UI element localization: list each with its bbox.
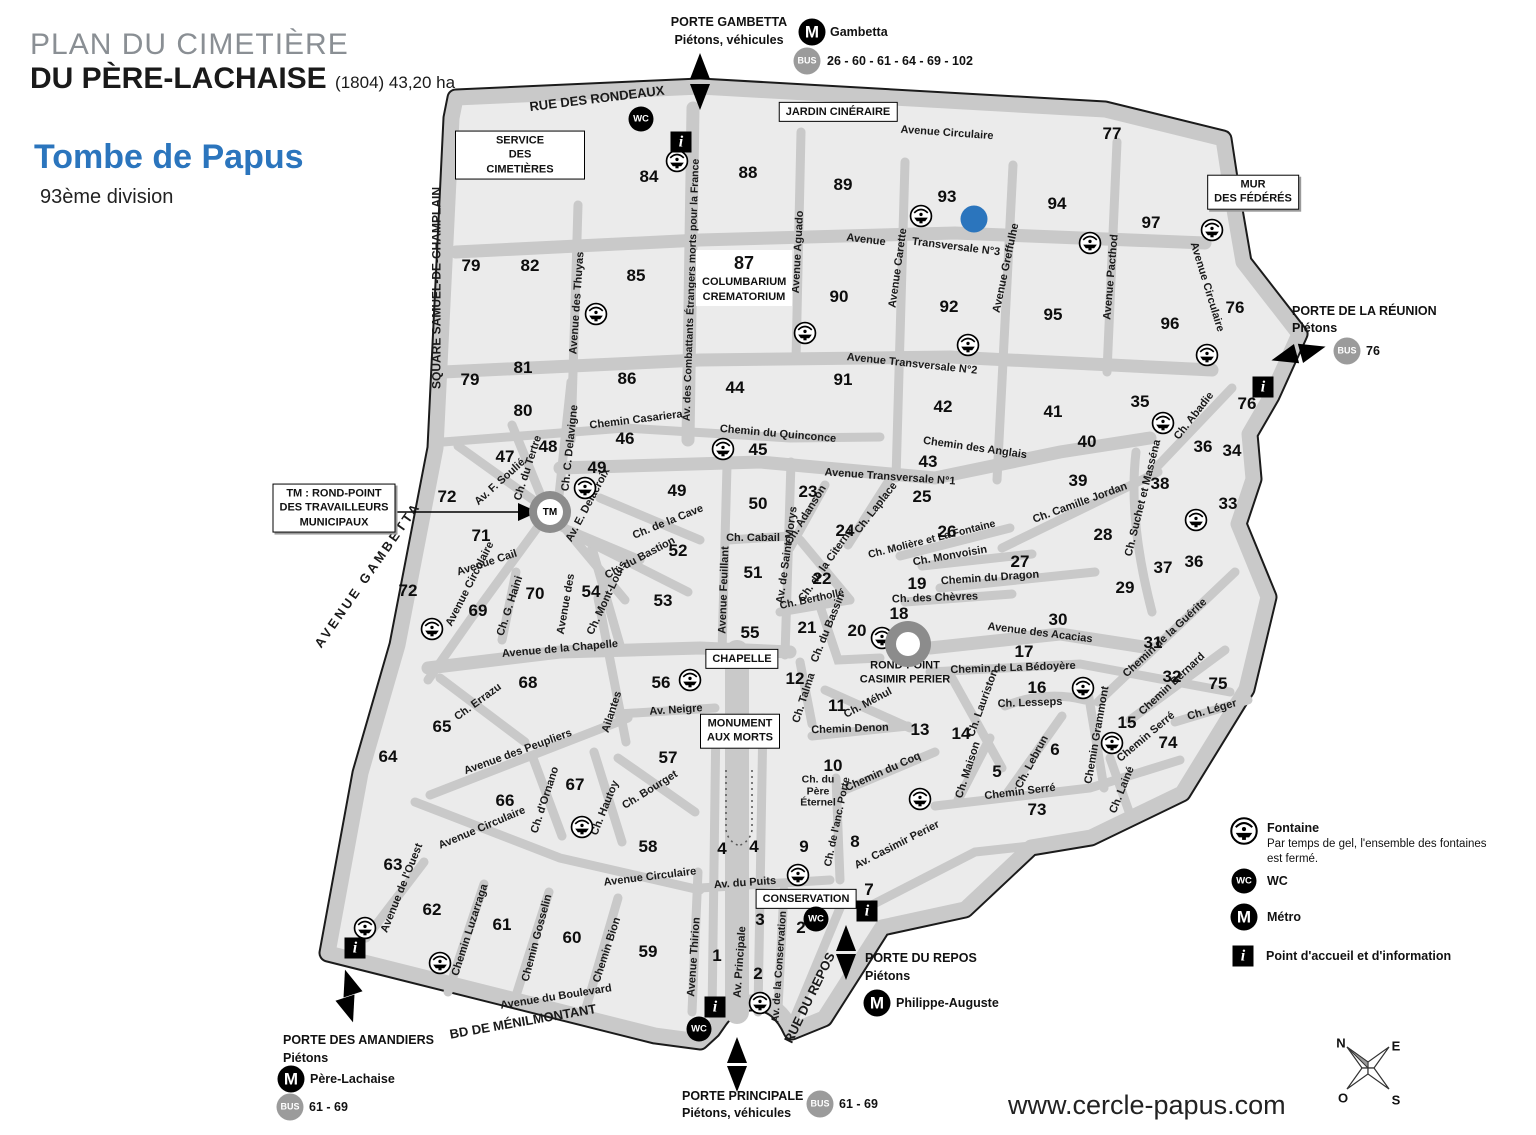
fountain-icon (1079, 232, 1102, 255)
fountain-icon (354, 917, 377, 940)
fountain-icon (666, 150, 689, 173)
tm-roundabout: TM (529, 491, 571, 533)
compass-south-label: S (1392, 1093, 1401, 1108)
division-label-1: 1 (712, 946, 721, 966)
street-label: Avenue Feuillant (716, 546, 731, 634)
street-label: Chemin Gosselin (520, 893, 555, 983)
division-label-95: 95 (1044, 305, 1063, 325)
division-label-64: 64 (379, 747, 398, 767)
jardin-cineraire-box: JARDIN CINÉRAIRE (779, 102, 898, 122)
division-label-68: 68 (519, 673, 538, 693)
legend-metro-label: Métro (1267, 910, 1301, 924)
division-label-94: 94 (1048, 194, 1067, 214)
fountain-icon (1230, 817, 1258, 845)
conservation-box: CONSERVATION (756, 889, 857, 909)
principale-entrance-subtitle: Piétons, véhicules (682, 1106, 791, 1120)
street-label: Chemin des Anglais (922, 435, 1027, 462)
division-label-77: 77 (1103, 124, 1122, 144)
division-label-25: 25 (913, 487, 932, 507)
gambetta-bus-label: 26 - 60 - 61 - 64 - 69 - 102 (827, 54, 973, 68)
street-label: Av. Principale (731, 926, 748, 998)
street-label: Avenue Circulaire (1188, 241, 1227, 334)
division-label-11: 11 (828, 696, 846, 716)
gambetta-entrance-subtitle: Piétons, véhicules (674, 33, 783, 47)
reunion-bus-label: 76 (1366, 344, 1380, 358)
tm-note-box: TM : ROND-POINTDES TRAVAILLEURSMUNICIPAU… (273, 484, 396, 533)
division-label-32: 32 (1163, 667, 1182, 687)
division-label-4: 4 (717, 839, 726, 859)
fountain-icon (585, 303, 608, 326)
division-label-34: 34 (1223, 441, 1242, 461)
metro-icon: M (799, 19, 826, 46)
division-label-4: 4 (749, 837, 758, 857)
division-label-92: 92 (940, 297, 959, 317)
info-icon: i (1233, 946, 1254, 967)
division-label-54: 54 (582, 582, 601, 602)
street-label: RUE DU REPOS (782, 950, 838, 1045)
entrance-arrow-icon (690, 84, 710, 110)
division-label-37: 37 (1154, 558, 1173, 578)
street-label: Ch. Suchet et Masséna (1123, 438, 1164, 557)
principale-entrance-title: PORTE PRINCIPALE (682, 1089, 803, 1103)
street-label: Avenue Greffulhe (991, 222, 1022, 314)
compass-north-label: N (1336, 1036, 1345, 1051)
division-label-57: 57 (659, 748, 678, 768)
legend-wc-label: WC (1267, 874, 1288, 888)
fountain-icon (910, 205, 933, 228)
division-label-42: 42 (934, 397, 953, 417)
street-label: Avenue Circulaire (900, 124, 994, 143)
division-label-21: 21 (798, 618, 817, 638)
fountain-icon (1201, 219, 1224, 242)
subject-title: Tombe de Papus (34, 138, 304, 177)
page-title-line1: PLAN DU CIMETIÈRE (30, 28, 349, 62)
division-label-9: 9 (799, 837, 808, 857)
division-label-36: 36 (1185, 552, 1204, 572)
division-label-26: 26 (938, 522, 957, 542)
legend-fountain-title: Fontaine (1267, 821, 1319, 835)
division-label-82: 82 (521, 256, 540, 276)
division-label-28: 28 (1094, 525, 1113, 545)
street-label: Chemin de La Bédoyère (950, 660, 1076, 676)
papus-tomb-marker (961, 206, 988, 233)
street-label: Chemin Bion (591, 916, 623, 984)
division-label-85: 85 (627, 266, 646, 286)
page-title-main: DU PÈRE-LACHAISE (30, 62, 327, 95)
street-label: Av. de la Conservation (770, 911, 789, 1024)
street-label: Avenue de la Chapelle (502, 638, 619, 660)
page-title-suffix: (1804) 43,20 ha (335, 73, 455, 92)
division-label-60: 60 (563, 928, 582, 948)
fountain-icon (909, 788, 932, 811)
street-label: Avenue Pacthod (1101, 234, 1121, 321)
division-label-53: 53 (654, 591, 673, 611)
division-label-62: 62 (423, 900, 442, 920)
division-label-15: 15 (1118, 713, 1137, 733)
division-label-55: 55 (741, 623, 760, 643)
street-label: Ch. Maison (953, 740, 983, 800)
division-label-84: 84 (640, 167, 659, 187)
street-label: Ch. Cabail (726, 532, 780, 544)
wc-icon: WC (687, 1017, 712, 1042)
street-label: Av. de Saint-Morys (774, 506, 800, 605)
amandiers-bus-label: 61 - 69 (309, 1100, 348, 1114)
fountain-icon (1101, 732, 1124, 755)
info-icon: i (671, 132, 692, 153)
entrance-arrow-icon (727, 1037, 747, 1063)
division-label-29: 29 (1116, 578, 1135, 598)
division-label-45: 45 (749, 440, 768, 460)
fountain-icon (957, 334, 980, 357)
compass-west-label: O (1338, 1091, 1348, 1106)
entrance-arrow-icon (690, 53, 710, 79)
repos-entrance-subtitle: Piétons (865, 969, 910, 983)
division-label-30: 30 (1049, 610, 1068, 630)
metro-icon: M (864, 990, 891, 1017)
division-label-31: 31 (1144, 633, 1163, 653)
amandiers-entrance-title: PORTE DES AMANDIERS (283, 1033, 434, 1047)
website-text: www.cercle-papus.com (1008, 1090, 1286, 1121)
street-label: Chemin Denon (811, 722, 889, 737)
street-label: Ch. Errazu (452, 681, 504, 723)
division-label-19: 19 (908, 574, 927, 594)
entrance-arrow-icon (836, 954, 856, 980)
division-label-90: 90 (830, 287, 849, 307)
division-label-71: 71 (472, 526, 491, 546)
metro-icon: M (1231, 904, 1258, 931)
street-label: Ch. duPèreÉternel (800, 775, 836, 810)
street-label: Ch. d'Ornano (529, 765, 562, 835)
division-label-70: 70 (526, 584, 545, 604)
repos-entrance-title: PORTE DU REPOS (865, 951, 977, 965)
street-label: Ch. Abadie (1172, 390, 1217, 442)
amandiers-entrance-subtitle: Piétons (283, 1051, 328, 1065)
division-label-13: 13 (911, 720, 930, 740)
principale-bus-label: 61 - 69 (839, 1097, 878, 1111)
division-label-69: 69 (469, 601, 488, 621)
info-icon: i (1253, 377, 1274, 398)
division-label-24: 24 (836, 521, 855, 541)
division-label-41: 41 (1044, 402, 1063, 422)
fountain-icon (429, 952, 452, 975)
fountain-icon (1185, 509, 1208, 532)
subject-subtitle: 93ème division (40, 186, 173, 209)
legend-fountain-desc1: Par temps de gel, l'ensemble des fontain… (1267, 838, 1487, 850)
division-label-79: 79 (462, 256, 481, 276)
division-label-72: 72 (399, 581, 418, 601)
division-label-67: 67 (566, 775, 585, 795)
division-label-61: 61 (493, 915, 512, 935)
division-label-12: 12 (786, 669, 805, 689)
division-label-96: 96 (1161, 314, 1180, 334)
division-label-17: 17 (1015, 642, 1034, 662)
division-label-91: 91 (834, 370, 853, 390)
division-label-22: 22 (813, 569, 832, 589)
fountain-icon (679, 669, 702, 692)
fountain-icon (574, 477, 597, 500)
street-label: Transversale N°3 (911, 236, 1001, 259)
division-label-3: 3 (755, 910, 764, 930)
fountain-icon (1072, 677, 1095, 700)
fountain-icon (712, 438, 735, 461)
entrance-arrow-icon (1298, 337, 1328, 363)
street-label: Avenue Circulaire (437, 804, 527, 852)
division-label-63: 63 (384, 855, 403, 875)
entrance-arrow-icon (836, 925, 856, 951)
division-label-76: 76 (1226, 298, 1245, 318)
chapelle-box: CHAPELLE (705, 649, 778, 669)
street-label: Chemin Luzarraga (449, 882, 490, 977)
division-label-35: 35 (1131, 392, 1150, 412)
monument-aux-morts-box: MONUMENTAUX MORTS (700, 714, 780, 749)
entrance-arrow-icon (335, 967, 362, 998)
metro-icon: M (278, 1066, 305, 1093)
division-label-93: 93 (938, 187, 957, 207)
street-label: Avenue des (555, 573, 578, 636)
division-label-40: 40 (1078, 432, 1097, 452)
repos-metro-label: Philippe-Auguste (896, 996, 999, 1010)
division-label-23: 23 (799, 482, 818, 502)
gambetta-entrance-title: PORTE GAMBETTA (671, 15, 787, 29)
fountain-icon (787, 864, 810, 887)
division-label-5: 5 (992, 762, 1001, 782)
fountain-icon (571, 816, 594, 839)
division-label-80: 80 (514, 401, 533, 421)
bus-icon: BUS (1334, 338, 1361, 365)
legend-fountain-desc2: est fermé. (1267, 853, 1318, 865)
service-cimetieres-box: SERVICEDESCIMETIÈRES (455, 131, 585, 180)
street-label: Ch. Méhul (842, 685, 894, 720)
bus-icon: BUS (807, 1091, 834, 1118)
division-label-49: 49 (668, 481, 687, 501)
division-label-43: 43 (919, 452, 938, 472)
division-label-51: 51 (744, 563, 763, 583)
division-label-73: 73 (1028, 800, 1047, 820)
fountain-icon (421, 618, 444, 641)
division-label-2: 2 (753, 964, 762, 984)
street-label: Chemin du Quinconce (719, 423, 836, 445)
gambetta-metro-label: Gambetta (830, 25, 888, 39)
street-label: Ailantes (600, 690, 625, 734)
street-label: Ch. Laplace (852, 480, 900, 536)
info-icon: i (857, 901, 878, 922)
bus-icon: BUS (794, 48, 821, 75)
street-label: Chemin Casariera (589, 408, 683, 431)
wc-icon: WC (629, 107, 654, 132)
info-icon: i (345, 938, 366, 959)
division-label-74: 74 (1159, 733, 1178, 753)
division-label-8: 8 (850, 832, 859, 852)
reunion-entrance-subtitle: Piétons (1292, 321, 1337, 335)
division-label-36: 36 (1194, 437, 1213, 457)
legend-info-label: Point d'accueil et d'information (1266, 949, 1451, 963)
page-title-line2: DU PÈRE-LACHAISE (1804) 43,20 ha (30, 62, 455, 96)
division-label-46: 46 (616, 429, 635, 449)
division-label-39: 39 (1069, 471, 1088, 491)
mur-federes-box: MURDES FÉDÉRÉS (1207, 175, 1299, 210)
street-label: Av. Neigre (649, 702, 703, 718)
division-label-16: 16 (1028, 678, 1047, 698)
division-label-66: 66 (496, 791, 515, 811)
street-label: Avenue des Acacias (987, 621, 1093, 646)
street-label: Ch. Bourget (620, 768, 680, 812)
division-label-75: 75 (1209, 674, 1228, 694)
street-label: Avenue (846, 232, 887, 249)
division-label-7: 7 (864, 880, 873, 900)
division-label-56: 56 (652, 673, 671, 693)
division-label-20: 20 (848, 621, 867, 641)
division-label-86: 86 (618, 369, 637, 389)
compass-east-label: E (1392, 1039, 1401, 1054)
fountain-icon (1152, 412, 1175, 435)
street-label: Avenue Aguado (790, 210, 806, 293)
columbarium-box: 87COLUMBARIUMCREMATORIUM (696, 250, 792, 306)
fountain-icon (794, 322, 817, 345)
street-label: Ch. G. Haini (495, 574, 526, 637)
street-label: Avenue Thirion (685, 917, 703, 997)
division-label-38: 38 (1151, 474, 1170, 494)
division-label-50: 50 (749, 494, 768, 514)
division-label-49: 49 (588, 458, 607, 478)
division-label-6: 6 (1050, 740, 1059, 760)
division-label-10: 10 (824, 756, 843, 776)
division-label-72: 72 (438, 487, 457, 507)
division-label-47: 47 (496, 447, 515, 467)
division-label-81: 81 (514, 358, 533, 378)
wc-icon: WC (1232, 869, 1257, 894)
street-label: Ch. Lainé (1107, 765, 1137, 815)
division-label-79: 79 (461, 370, 480, 390)
division-label-48: 48 (539, 437, 558, 457)
street-label: Av. Casimir Perier (853, 818, 942, 871)
reunion-entrance-title: PORTE DE LA RÉUNION (1292, 304, 1437, 318)
street-label: Avenue Carette (886, 227, 909, 308)
division-label-97: 97 (1142, 213, 1161, 233)
street-label: SQUARE SAMUEL-DE-CHAMPLAIN (430, 187, 443, 389)
street-label: Ch. Léger (1186, 697, 1238, 723)
division-label-33: 33 (1219, 494, 1238, 514)
division-label-88: 88 (739, 163, 758, 183)
amandiers-metro-label: Père-Lachaise (310, 1072, 395, 1086)
division-label-65: 65 (433, 717, 452, 737)
division-label-27: 27 (1011, 552, 1030, 572)
casimir-perier-roundabout (885, 621, 931, 667)
division-label-44: 44 (726, 378, 745, 398)
division-label-89: 89 (834, 175, 853, 195)
street-label: Avenue Circulaire (603, 865, 697, 888)
division-label-52: 52 (669, 541, 688, 561)
fountain-icon (749, 992, 772, 1015)
pere-lachaise-map-page: RUE DES RONDEAUXAvenue CirculaireSQUARE … (0, 0, 1536, 1135)
entrance-arrow-icon (335, 995, 362, 1026)
info-icon: i (705, 997, 726, 1018)
division-label-58: 58 (639, 837, 658, 857)
division-label-59: 59 (639, 942, 658, 962)
fountain-icon (1196, 344, 1219, 367)
entrance-arrow-icon (1269, 344, 1299, 370)
division-label-14: 14 (952, 724, 971, 744)
wc-icon: WC (804, 907, 829, 932)
bus-icon: BUS (277, 1094, 304, 1121)
